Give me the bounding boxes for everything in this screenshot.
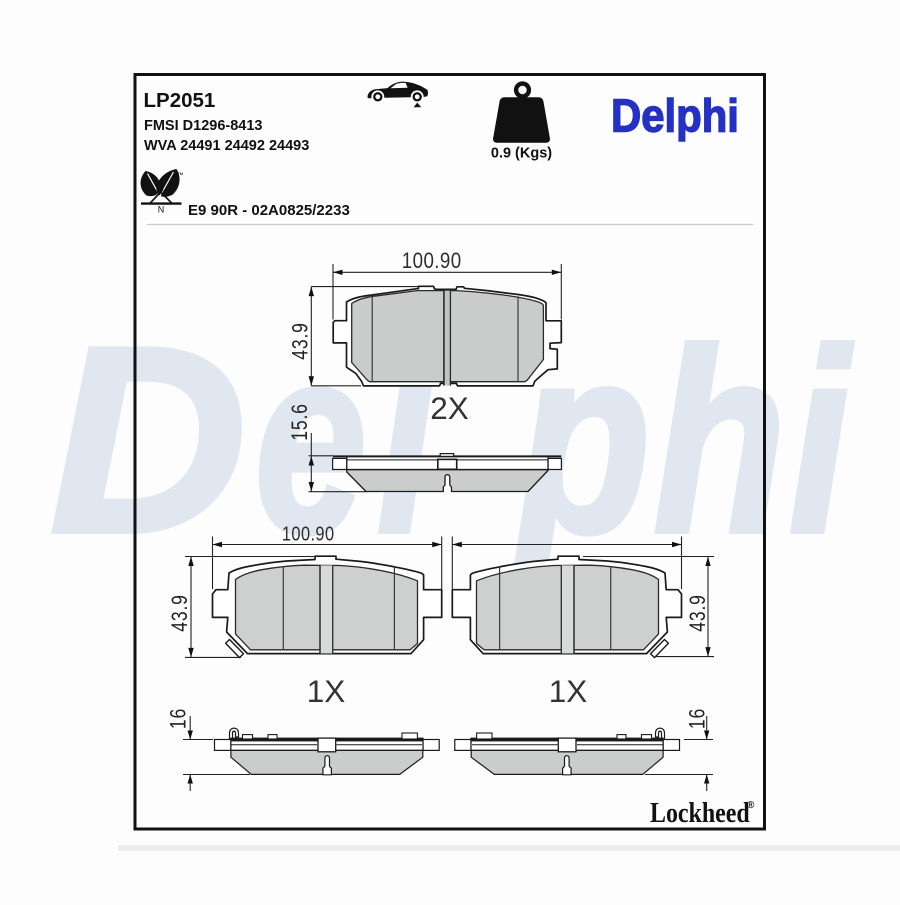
svg-text:1X: 1X	[549, 673, 588, 709]
svg-text:43.9: 43.9	[168, 594, 192, 631]
svg-text:™: ™	[177, 172, 184, 179]
svg-text:D: D	[50, 292, 246, 588]
svg-text:2X: 2X	[430, 390, 469, 426]
svg-text:43.9: 43.9	[289, 322, 313, 359]
svg-text:WVA 24491 24492 24493: WVA 24491 24492 24493	[144, 138, 309, 154]
svg-text:Delphi: Delphi	[611, 91, 739, 142]
svg-text:N: N	[158, 205, 165, 215]
svg-text:E9 90R - 02A0825/2233: E9 90R - 02A0825/2233	[188, 202, 350, 219]
svg-text:0.9 (Kgs): 0.9 (Kgs)	[491, 146, 552, 162]
svg-text:100.90: 100.90	[282, 522, 335, 545]
svg-text:15.6: 15.6	[288, 403, 312, 440]
svg-text:43.9: 43.9	[686, 594, 710, 631]
svg-text:100.90: 100.90	[402, 249, 462, 274]
svg-text:LP2051: LP2051	[144, 89, 216, 112]
svg-text:Lockheed: Lockheed	[650, 797, 750, 828]
svg-text:16: 16	[686, 708, 710, 729]
svg-text:®: ®	[747, 800, 755, 811]
svg-text:1X: 1X	[307, 673, 346, 709]
svg-text:phi: phi	[513, 293, 854, 588]
svg-text:16: 16	[167, 708, 191, 729]
svg-text:FMSI D1296-8413: FMSI D1296-8413	[144, 118, 262, 134]
